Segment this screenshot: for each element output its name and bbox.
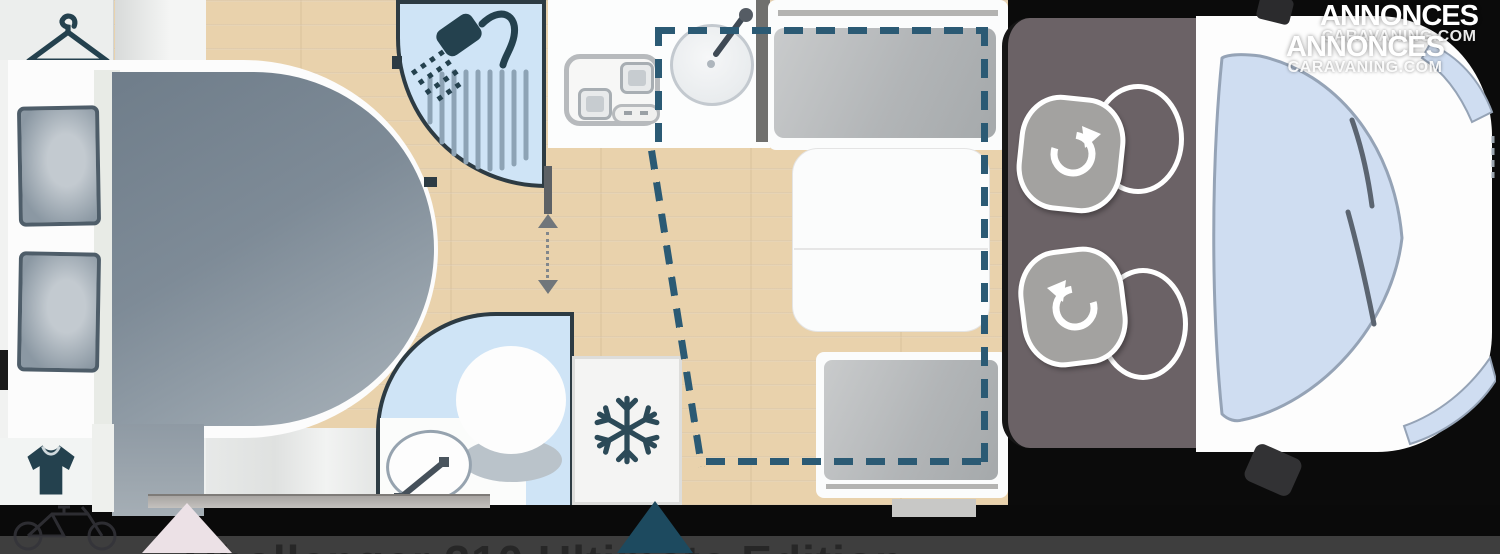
rotate-clockwise-icon bbox=[1040, 118, 1106, 184]
dropdown-bed-outline-top bbox=[656, 27, 988, 34]
light-triangle-marker bbox=[142, 503, 232, 553]
bicycle-icon bbox=[2, 500, 132, 552]
hob-control-knob bbox=[640, 111, 648, 115]
watermark-site: CARAVANING.COM bbox=[1286, 60, 1444, 75]
dropdown-bed-outline-bottom bbox=[706, 458, 988, 465]
hob-control-panel bbox=[612, 104, 660, 124]
watermark: ANNONCES CARAVANING.COM bbox=[1286, 34, 1444, 75]
rotate-counterclockwise-icon bbox=[1042, 272, 1108, 338]
dropdown-bed-outline-right bbox=[981, 27, 988, 465]
door-travel-dotted-line bbox=[546, 232, 549, 278]
toilet bbox=[456, 346, 566, 454]
snowflake-icon bbox=[593, 392, 661, 468]
shower-door-handle bbox=[392, 56, 402, 69]
hob-control-knob bbox=[624, 111, 632, 115]
door-travel-arrow-down bbox=[538, 280, 558, 294]
shower-door-handle bbox=[424, 177, 437, 187]
entry-step bbox=[892, 499, 976, 517]
watermark-brand: ANNONCES bbox=[1286, 34, 1444, 60]
bench-cushion bbox=[774, 28, 996, 138]
hob-burner-inner bbox=[586, 96, 604, 112]
model-title: Challenger 310 Ultimate Edition bbox=[183, 535, 904, 554]
door-travel-arrow-up bbox=[538, 214, 558, 228]
pillow bbox=[17, 251, 101, 372]
wall-notch bbox=[0, 350, 8, 390]
side-window-bottom bbox=[1404, 358, 1496, 444]
hob-burner-inner bbox=[628, 70, 646, 86]
dinette-table bbox=[792, 148, 990, 332]
watermark-brand: ANNONCES bbox=[1320, 3, 1478, 29]
teal-triangle-marker bbox=[617, 501, 693, 553]
shower-head-icon bbox=[408, 2, 523, 107]
dropdown-bed-outline-left bbox=[655, 27, 662, 153]
partition-rail bbox=[544, 166, 552, 214]
windshield bbox=[1196, 16, 1496, 452]
shirt-icon bbox=[18, 437, 84, 501]
sink-faucet-icon bbox=[700, 6, 760, 62]
bed-sheet-drape bbox=[92, 424, 114, 512]
motorhome-floorplan: Challenger 310 Ultimate Edition ANNONCES… bbox=[0, 0, 1500, 554]
table-fold-line bbox=[794, 248, 988, 250]
pillow bbox=[17, 105, 101, 226]
bench-backrest-line bbox=[778, 10, 998, 16]
bench-base-line bbox=[826, 484, 998, 489]
cab-floor bbox=[1002, 18, 1204, 448]
